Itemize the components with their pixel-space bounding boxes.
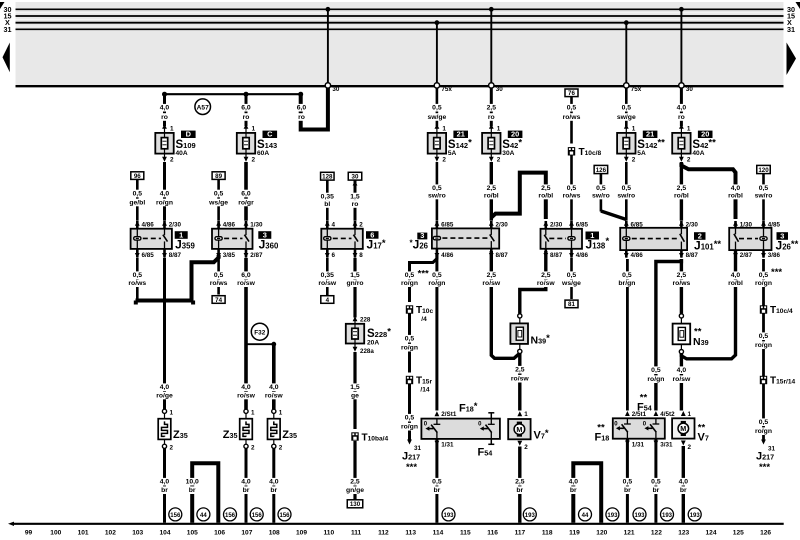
svg-text:ro: ro bbox=[678, 114, 685, 121]
svg-text:0,5: 0,5 bbox=[651, 367, 661, 374]
svg-text:109: 109 bbox=[296, 530, 307, 537]
svg-text:sw/ro: sw/ro bbox=[755, 192, 773, 199]
svg-text:/14: /14 bbox=[420, 387, 429, 394]
svg-text:0,5: 0,5 bbox=[405, 336, 415, 343]
svg-text:gn/ge: gn/ge bbox=[346, 487, 364, 494]
svg-text:0,5: 0,5 bbox=[759, 419, 769, 426]
svg-text:V7: V7 bbox=[698, 432, 709, 444]
svg-text:1: 1 bbox=[251, 409, 255, 416]
svg-text:124: 124 bbox=[705, 530, 716, 537]
svg-text:31: 31 bbox=[414, 445, 422, 452]
svg-text:0,5: 0,5 bbox=[214, 190, 224, 197]
svg-text:156: 156 bbox=[252, 513, 263, 519]
svg-text:0,5: 0,5 bbox=[405, 415, 415, 422]
svg-text:br: br bbox=[570, 487, 577, 494]
svg-text:100: 100 bbox=[50, 530, 61, 537]
svg-text:4,0: 4,0 bbox=[569, 479, 579, 486]
svg-text:gn/ro: gn/ro bbox=[347, 280, 364, 287]
svg-text:81: 81 bbox=[568, 301, 575, 308]
svg-text:ro/gn: ro/gn bbox=[401, 280, 418, 287]
svg-text:0,5: 0,5 bbox=[133, 272, 143, 279]
svg-text:31: 31 bbox=[787, 25, 795, 34]
svg-text:4: 4 bbox=[332, 221, 336, 228]
svg-text:3/31: 3/31 bbox=[660, 441, 673, 448]
svg-text:4,0: 4,0 bbox=[731, 185, 741, 192]
svg-text:6,0: 6,0 bbox=[297, 105, 307, 112]
svg-text:ro/gn: ro/gn bbox=[428, 280, 445, 287]
svg-text:ro/sw: ro/sw bbox=[511, 376, 529, 383]
svg-text:ro/gn: ro/gn bbox=[401, 424, 418, 431]
svg-text:4: 4 bbox=[326, 297, 330, 304]
svg-text:102: 102 bbox=[105, 530, 116, 537]
svg-text:Z35: Z35 bbox=[282, 429, 297, 441]
svg-text:31: 31 bbox=[768, 446, 776, 453]
svg-text:4/86: 4/86 bbox=[223, 221, 236, 228]
svg-text:sw/ro: sw/ro bbox=[617, 192, 635, 199]
svg-text:4,0: 4,0 bbox=[241, 479, 251, 486]
svg-text:ro/bl: ro/bl bbox=[484, 192, 499, 199]
svg-text:103: 103 bbox=[132, 530, 143, 537]
svg-text:bl: bl bbox=[324, 201, 330, 208]
svg-text:M: M bbox=[680, 424, 686, 433]
svg-text:ro/bl: ro/bl bbox=[538, 192, 553, 199]
svg-text:br: br bbox=[680, 487, 687, 494]
svg-text:20A: 20A bbox=[367, 340, 379, 347]
svg-text:128: 128 bbox=[322, 174, 333, 181]
svg-text:0,5: 0,5 bbox=[133, 190, 143, 197]
svg-text:110: 110 bbox=[323, 530, 334, 537]
svg-text:0,5: 0,5 bbox=[214, 272, 224, 279]
svg-text:5A: 5A bbox=[637, 150, 646, 157]
svg-text:ro/ws: ro/ws bbox=[210, 280, 228, 287]
svg-text:ro/sw: ro/sw bbox=[673, 376, 691, 383]
svg-text:156: 156 bbox=[225, 513, 236, 519]
svg-text:193: 193 bbox=[525, 513, 536, 519]
svg-text:4,0: 4,0 bbox=[160, 384, 170, 391]
svg-text:116: 116 bbox=[487, 530, 498, 537]
svg-text:114: 114 bbox=[433, 530, 444, 537]
svg-text:120: 120 bbox=[758, 167, 769, 174]
svg-text:br: br bbox=[433, 487, 440, 494]
svg-text:6,0: 6,0 bbox=[241, 190, 251, 197]
svg-text:10,0: 10,0 bbox=[186, 479, 199, 486]
svg-text:105: 105 bbox=[187, 530, 198, 537]
svg-text:107: 107 bbox=[241, 530, 252, 537]
svg-text:2/30: 2/30 bbox=[496, 221, 509, 228]
svg-text:2/87: 2/87 bbox=[250, 252, 263, 259]
svg-text:2: 2 bbox=[252, 157, 256, 164]
svg-text:3/85: 3/85 bbox=[223, 252, 236, 259]
svg-text:60A: 60A bbox=[257, 150, 269, 157]
svg-text:ro/sw: ro/sw bbox=[237, 392, 255, 399]
svg-text:2/5t1: 2/5t1 bbox=[632, 411, 647, 418]
svg-text:74: 74 bbox=[215, 297, 222, 304]
svg-text:2/30: 2/30 bbox=[169, 221, 182, 228]
svg-text:ro/bl: ro/bl bbox=[728, 280, 743, 287]
svg-text:ws/ge: ws/ge bbox=[561, 280, 581, 287]
svg-text:6,0: 6,0 bbox=[241, 272, 251, 279]
svg-text:ro/gr: ro/gr bbox=[238, 199, 254, 206]
svg-text:75x: 75x bbox=[631, 86, 642, 93]
svg-text:125: 125 bbox=[733, 530, 744, 537]
svg-text:sw/ge: sw/ge bbox=[617, 114, 636, 121]
svg-text:117: 117 bbox=[515, 530, 526, 537]
svg-text:2: 2 bbox=[687, 157, 691, 164]
svg-text:0,5: 0,5 bbox=[432, 272, 442, 279]
svg-text:ro/gn: ro/gn bbox=[156, 199, 173, 206]
svg-text:ro: ro bbox=[298, 114, 305, 121]
svg-text:104: 104 bbox=[159, 530, 170, 537]
svg-text:br: br bbox=[652, 487, 659, 494]
svg-text:1/30: 1/30 bbox=[250, 221, 263, 228]
svg-text:sw/ge: sw/ge bbox=[427, 114, 446, 121]
svg-text:228: 228 bbox=[360, 317, 371, 324]
svg-text:2,5: 2,5 bbox=[541, 272, 551, 279]
svg-text:2,5: 2,5 bbox=[487, 272, 497, 279]
svg-text:8: 8 bbox=[359, 252, 363, 259]
svg-text:4,0: 4,0 bbox=[269, 384, 279, 391]
svg-text:193: 193 bbox=[662, 513, 673, 519]
svg-text:156: 156 bbox=[170, 513, 181, 519]
svg-text:0,5: 0,5 bbox=[567, 272, 577, 279]
svg-text:0,5: 0,5 bbox=[651, 479, 661, 486]
svg-text:2: 2 bbox=[359, 221, 363, 228]
svg-text:193: 193 bbox=[634, 513, 645, 519]
svg-text:1: 1 bbox=[252, 126, 256, 133]
svg-text:1: 1 bbox=[170, 126, 174, 133]
svg-text:J217: J217 bbox=[402, 451, 420, 463]
svg-text:8/87: 8/87 bbox=[550, 252, 563, 259]
svg-text:193: 193 bbox=[607, 513, 618, 519]
svg-text:89: 89 bbox=[215, 173, 222, 180]
svg-text:4,0: 4,0 bbox=[677, 367, 687, 374]
svg-text:228a: 228a bbox=[360, 348, 374, 355]
svg-text:40A: 40A bbox=[692, 150, 704, 157]
svg-text:ro: ro bbox=[243, 114, 250, 121]
svg-text:156: 156 bbox=[279, 513, 290, 519]
svg-text:0,5: 0,5 bbox=[567, 105, 577, 112]
svg-text:1: 1 bbox=[687, 126, 691, 133]
svg-text:F32: F32 bbox=[254, 329, 265, 336]
svg-text:ro/ws: ro/ws bbox=[128, 280, 146, 287]
svg-text:ro/ws: ro/ws bbox=[563, 114, 581, 121]
svg-text:6/85: 6/85 bbox=[142, 252, 155, 259]
svg-text:2: 2 bbox=[442, 157, 446, 164]
svg-text:4/86: 4/86 bbox=[142, 221, 155, 228]
svg-text:108: 108 bbox=[269, 530, 280, 537]
svg-text:br: br bbox=[516, 487, 523, 494]
svg-text:F18: F18 bbox=[595, 432, 610, 444]
svg-text:2: 2 bbox=[497, 157, 501, 164]
svg-text:0,5: 0,5 bbox=[759, 185, 769, 192]
svg-text:ro/bl: ro/bl bbox=[674, 192, 689, 199]
svg-text:1: 1 bbox=[442, 126, 446, 133]
svg-text:120: 120 bbox=[596, 530, 607, 537]
svg-text:ro/ge: ro/ge bbox=[156, 392, 173, 399]
svg-text:N39: N39 bbox=[693, 336, 709, 348]
svg-text:99: 99 bbox=[25, 530, 33, 537]
svg-text:ws/ge: ws/ge bbox=[208, 199, 228, 206]
svg-text:0,5: 0,5 bbox=[567, 185, 577, 192]
svg-text:101: 101 bbox=[78, 530, 89, 537]
svg-text:4,0: 4,0 bbox=[160, 105, 170, 112]
svg-text:1,5: 1,5 bbox=[350, 272, 360, 279]
svg-text:2/30: 2/30 bbox=[550, 221, 563, 228]
svg-text:J217: J217 bbox=[756, 451, 774, 463]
svg-text:193: 193 bbox=[690, 513, 701, 519]
svg-text:130: 130 bbox=[350, 501, 361, 508]
svg-text:ro/sw: ro/sw bbox=[237, 280, 255, 287]
svg-text:4,0: 4,0 bbox=[731, 272, 741, 279]
svg-text:D: D bbox=[186, 130, 192, 139]
svg-text:0,5: 0,5 bbox=[759, 272, 769, 279]
svg-text:118: 118 bbox=[542, 530, 553, 537]
svg-text:ro/sw: ro/sw bbox=[318, 280, 336, 287]
svg-text:0,5: 0,5 bbox=[622, 185, 632, 192]
svg-text:ro/ws: ro/ws bbox=[563, 192, 581, 199]
svg-text:31: 31 bbox=[4, 25, 12, 34]
svg-text:2,5: 2,5 bbox=[541, 185, 551, 192]
svg-text:0,5: 0,5 bbox=[622, 105, 632, 112]
svg-text:5A: 5A bbox=[448, 150, 457, 157]
svg-text:ro/sw: ro/sw bbox=[482, 280, 500, 287]
svg-text:0,5: 0,5 bbox=[432, 105, 442, 112]
svg-text:30: 30 bbox=[332, 86, 340, 93]
svg-text:6,0: 6,0 bbox=[241, 105, 251, 112]
svg-text:ro: ro bbox=[161, 114, 168, 121]
svg-text:***: *** bbox=[759, 462, 770, 473]
svg-text:br: br bbox=[189, 487, 196, 494]
svg-text:4/5t2: 4/5t2 bbox=[660, 411, 675, 418]
svg-text:ro/sw: ro/sw bbox=[265, 392, 283, 399]
svg-text:C: C bbox=[267, 130, 273, 139]
svg-text:8/87: 8/87 bbox=[686, 252, 699, 259]
svg-text:119: 119 bbox=[569, 530, 580, 537]
svg-text:2/87: 2/87 bbox=[740, 252, 753, 259]
svg-text:0,35: 0,35 bbox=[321, 193, 334, 200]
svg-text:21: 21 bbox=[646, 130, 654, 139]
svg-text:1: 1 bbox=[279, 409, 283, 416]
svg-text:111: 111 bbox=[351, 530, 362, 537]
svg-text:br: br bbox=[243, 487, 250, 494]
svg-text:F54: F54 bbox=[478, 447, 493, 459]
svg-text:8/87: 8/87 bbox=[169, 252, 182, 259]
svg-text:4,0: 4,0 bbox=[269, 479, 279, 486]
svg-text:4,0: 4,0 bbox=[160, 479, 170, 486]
svg-text:106: 106 bbox=[214, 530, 225, 537]
svg-text:115: 115 bbox=[460, 530, 471, 537]
svg-text:2,5: 2,5 bbox=[515, 367, 525, 374]
svg-text:sw/ro: sw/ro bbox=[428, 192, 446, 199]
svg-text:br: br bbox=[624, 487, 631, 494]
svg-text:121: 121 bbox=[624, 530, 635, 537]
svg-text:4/86: 4/86 bbox=[441, 252, 454, 259]
svg-text:6/85: 6/85 bbox=[441, 221, 454, 228]
svg-text:1: 1 bbox=[688, 411, 692, 418]
svg-text:193: 193 bbox=[443, 513, 454, 519]
svg-text:30: 30 bbox=[352, 174, 359, 181]
svg-text:30: 30 bbox=[496, 86, 504, 93]
svg-text:0,35: 0,35 bbox=[321, 272, 334, 279]
svg-text:A57: A57 bbox=[197, 104, 209, 111]
svg-text:ro/ws: ro/ws bbox=[673, 280, 691, 287]
svg-text:1: 1 bbox=[632, 126, 636, 133]
svg-text:4,0: 4,0 bbox=[241, 384, 251, 391]
svg-text:br: br bbox=[161, 487, 168, 494]
svg-text:***: *** bbox=[418, 269, 429, 280]
svg-text:1,5: 1,5 bbox=[350, 384, 360, 391]
svg-text:44: 44 bbox=[200, 513, 207, 519]
svg-text:ro/gn: ro/gn bbox=[647, 376, 664, 383]
svg-text:123: 123 bbox=[678, 530, 689, 537]
svg-text:ro/gn: ro/gn bbox=[755, 280, 772, 287]
svg-text:2,5: 2,5 bbox=[487, 105, 497, 112]
svg-text:sw/ro: sw/ro bbox=[592, 192, 610, 199]
svg-text:0,5: 0,5 bbox=[622, 272, 632, 279]
svg-text:ro: ro bbox=[352, 201, 359, 208]
svg-text:3: 3 bbox=[420, 231, 424, 240]
svg-text:96: 96 bbox=[134, 173, 141, 180]
svg-text:75x: 75x bbox=[441, 86, 452, 93]
svg-text:2,5: 2,5 bbox=[350, 479, 360, 486]
svg-text:br: br bbox=[270, 487, 277, 494]
svg-text:40A: 40A bbox=[176, 150, 188, 157]
svg-text:2,5: 2,5 bbox=[677, 185, 687, 192]
svg-text:4,0: 4,0 bbox=[679, 479, 689, 486]
svg-text:4/86: 4/86 bbox=[631, 252, 644, 259]
svg-text:122: 122 bbox=[651, 530, 662, 537]
svg-text:br/gn: br/gn bbox=[618, 280, 635, 287]
svg-text:1/31: 1/31 bbox=[632, 441, 645, 448]
svg-text:2: 2 bbox=[688, 444, 692, 451]
svg-text:1: 1 bbox=[497, 126, 501, 133]
svg-text:1: 1 bbox=[170, 409, 174, 416]
svg-text:M: M bbox=[516, 425, 522, 434]
svg-text:Z35: Z35 bbox=[223, 429, 238, 441]
svg-text:***: *** bbox=[771, 267, 782, 278]
svg-text:0,5: 0,5 bbox=[759, 333, 769, 340]
svg-text:30: 30 bbox=[686, 86, 694, 93]
svg-text:126: 126 bbox=[596, 167, 607, 174]
svg-text:44: 44 bbox=[582, 513, 589, 519]
svg-text:2,5: 2,5 bbox=[515, 479, 525, 486]
svg-text:2: 2 bbox=[170, 445, 174, 452]
svg-text:1: 1 bbox=[524, 411, 528, 418]
svg-text:2: 2 bbox=[279, 445, 283, 452]
svg-text:ge/bl: ge/bl bbox=[129, 199, 145, 206]
svg-text:ge: ge bbox=[351, 392, 359, 399]
svg-text:4,0: 4,0 bbox=[160, 190, 170, 197]
svg-text:ro/sw: ro/sw bbox=[537, 280, 555, 287]
svg-text:2/St1: 2/St1 bbox=[441, 411, 457, 418]
svg-text:126: 126 bbox=[760, 530, 771, 537]
svg-text:2: 2 bbox=[251, 445, 255, 452]
svg-text:ro: ro bbox=[488, 114, 495, 121]
svg-text:2: 2 bbox=[632, 157, 636, 164]
svg-text:/4: /4 bbox=[421, 316, 427, 323]
svg-text:0,5: 0,5 bbox=[432, 479, 442, 486]
svg-text:30A: 30A bbox=[502, 150, 514, 157]
svg-text:4,0: 4,0 bbox=[677, 105, 687, 112]
svg-text:0,5: 0,5 bbox=[596, 185, 606, 192]
svg-text:4/86: 4/86 bbox=[576, 252, 589, 259]
svg-text:Z35: Z35 bbox=[173, 429, 188, 441]
svg-text:2,5: 2,5 bbox=[677, 272, 687, 279]
svg-text:ro/gn: ro/gn bbox=[755, 428, 772, 435]
svg-text:ro/bl: ro/bl bbox=[728, 192, 743, 199]
svg-text:76: 76 bbox=[568, 90, 575, 97]
svg-text:3/86: 3/86 bbox=[768, 252, 781, 259]
svg-text:6: 6 bbox=[332, 252, 336, 259]
svg-text:0,5: 0,5 bbox=[405, 272, 415, 279]
svg-text:8/87: 8/87 bbox=[496, 252, 509, 259]
svg-text:112: 112 bbox=[378, 530, 389, 537]
svg-text:2: 2 bbox=[524, 444, 528, 451]
svg-text:1/31: 1/31 bbox=[441, 441, 454, 448]
svg-text:***: *** bbox=[406, 462, 417, 473]
svg-text:6/85: 6/85 bbox=[576, 221, 589, 228]
svg-text:21: 21 bbox=[457, 130, 465, 139]
svg-text:1,5: 1,5 bbox=[350, 193, 360, 200]
svg-text:2,5: 2,5 bbox=[487, 185, 497, 192]
svg-text:2: 2 bbox=[170, 157, 174, 164]
svg-text:113: 113 bbox=[405, 530, 416, 537]
svg-text:ro/gn: ro/gn bbox=[755, 342, 772, 349]
svg-text:0,5: 0,5 bbox=[623, 479, 633, 486]
svg-text:*: * bbox=[606, 236, 610, 247]
svg-text:0,5: 0,5 bbox=[432, 185, 442, 192]
svg-text:ro/gn: ro/gn bbox=[401, 345, 418, 352]
